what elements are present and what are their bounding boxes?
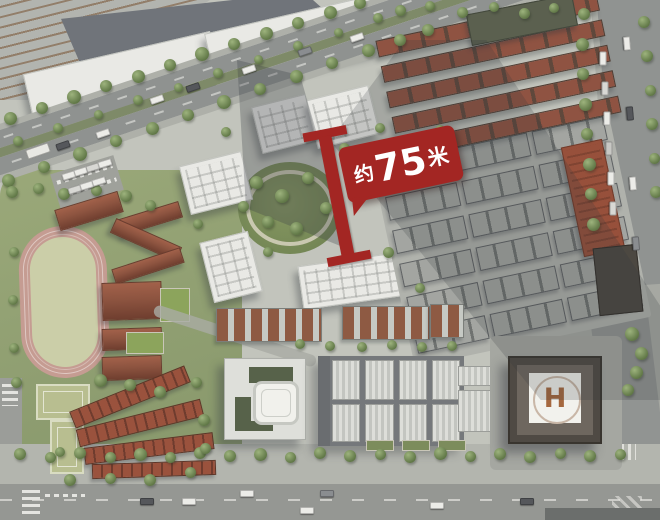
mall-section <box>365 404 393 442</box>
mall-section <box>399 404 427 442</box>
mall-atrium <box>318 356 330 446</box>
tree <box>221 127 231 137</box>
mall-section <box>432 404 460 442</box>
sports-court <box>50 420 84 474</box>
pergola-canopy <box>430 304 464 338</box>
planter <box>366 440 394 451</box>
roof-detail <box>205 237 256 297</box>
court-lines <box>57 427 77 467</box>
mall-section <box>399 360 427 400</box>
mall-section <box>332 404 360 442</box>
planter <box>402 440 430 451</box>
pergola-canopy <box>342 306 430 340</box>
crosswalk <box>22 490 40 518</box>
office-building <box>224 358 306 440</box>
mall-building <box>318 356 464 446</box>
tree <box>325 341 335 351</box>
tree <box>357 342 367 352</box>
mall-section <box>332 360 360 400</box>
mall-section <box>432 360 460 400</box>
mall-roof-row <box>332 360 460 400</box>
site-plan-rendering: H 约 75 米 <box>0 0 660 520</box>
mall-roof-row <box>332 404 460 442</box>
mall-section <box>365 360 393 400</box>
distance-unit: 米 <box>425 139 452 173</box>
tree <box>387 340 397 350</box>
courtyard-ring <box>261 389 291 417</box>
median-strip <box>545 508 660 520</box>
stop-line <box>45 494 85 497</box>
lane-marking <box>0 499 660 501</box>
distance-value: 75 <box>371 141 429 188</box>
pergola-canopy <box>216 308 322 342</box>
bottom-road <box>0 484 660 520</box>
running-track <box>17 225 110 380</box>
court-lines <box>43 391 83 413</box>
crosswalk <box>2 384 18 406</box>
roof-detail <box>185 157 247 209</box>
sports-court <box>36 384 90 420</box>
office-courtyard <box>253 381 299 425</box>
school-courtyard <box>126 332 164 354</box>
planter <box>438 440 466 451</box>
track-infield <box>29 236 99 368</box>
callout-tail <box>352 196 371 216</box>
